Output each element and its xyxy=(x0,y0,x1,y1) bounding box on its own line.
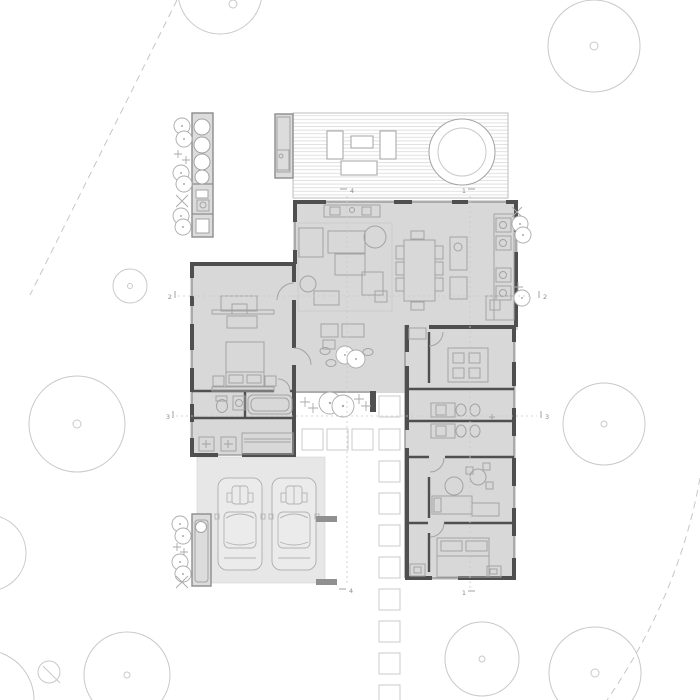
planter-pot xyxy=(194,137,210,153)
living-dining-kitchen-floor xyxy=(293,200,518,330)
stepping-stone xyxy=(379,557,400,578)
tree xyxy=(84,632,170,700)
tree-sapling xyxy=(38,661,60,683)
strip-fixture xyxy=(196,190,208,198)
car xyxy=(269,478,319,570)
planter-pot xyxy=(195,170,209,184)
stepping-stone xyxy=(379,525,400,546)
stepping-stone xyxy=(379,461,400,482)
shrub-cluster xyxy=(173,208,191,235)
stepping-stone xyxy=(352,429,373,450)
entry-shrub-cluster xyxy=(319,392,354,417)
section-marker-4-top: 4 xyxy=(350,187,354,195)
section-marker-4-bottom: 4 xyxy=(349,587,353,595)
stepping-stone xyxy=(327,429,348,450)
section-marker-1-bottom: 1 xyxy=(462,589,466,597)
stepping-stone xyxy=(302,429,323,450)
strip-fixture xyxy=(196,219,209,233)
floor-plan-canvas: 2 2 3 3 4 1 4 1 xyxy=(0,0,700,700)
tree xyxy=(113,269,147,303)
stepping-stone xyxy=(379,493,400,514)
tree xyxy=(549,627,641,700)
shrub-cluster xyxy=(174,118,192,147)
tree xyxy=(548,0,640,92)
stepping-stone xyxy=(379,589,400,610)
stepping-stone xyxy=(379,653,400,674)
carport-post xyxy=(316,516,337,522)
section-marker-2-left: 2 xyxy=(168,293,172,301)
tree xyxy=(0,515,26,591)
car xyxy=(215,478,265,570)
section-marker-1-top: 1 xyxy=(462,187,466,195)
outdoor-kitchen-unit xyxy=(275,114,293,178)
planting-strip xyxy=(192,113,213,237)
tree xyxy=(0,650,34,700)
shrub-cluster xyxy=(172,554,191,582)
carport xyxy=(192,457,337,586)
property-line-southeast xyxy=(607,478,700,700)
shrub-cluster xyxy=(172,516,191,544)
planter-pot xyxy=(194,119,210,135)
tree xyxy=(29,376,125,472)
garden-storage-unit xyxy=(192,514,211,586)
entry-door-jamb xyxy=(370,391,376,412)
floor-plan-drawing: 2 2 3 3 4 1 4 1 xyxy=(0,0,700,700)
tree xyxy=(563,383,645,465)
section-marker-3-left: 3 xyxy=(166,413,170,421)
tree xyxy=(445,622,519,696)
shrub-cluster xyxy=(173,165,192,192)
deck-terrace xyxy=(275,113,508,198)
shrub-cluster xyxy=(514,290,530,306)
property-line-northwest xyxy=(30,0,177,295)
stepping-stone xyxy=(379,396,400,417)
section-marker-2-right: 2 xyxy=(543,293,547,301)
carport-post xyxy=(316,579,337,585)
planter-pot xyxy=(194,154,210,170)
tree xyxy=(178,0,262,34)
stepping-stone xyxy=(379,685,400,700)
section-marker-3-right: 3 xyxy=(545,413,549,421)
stepping-stone xyxy=(379,621,400,642)
deck-planter xyxy=(429,119,495,185)
stepping-stone xyxy=(379,429,400,450)
